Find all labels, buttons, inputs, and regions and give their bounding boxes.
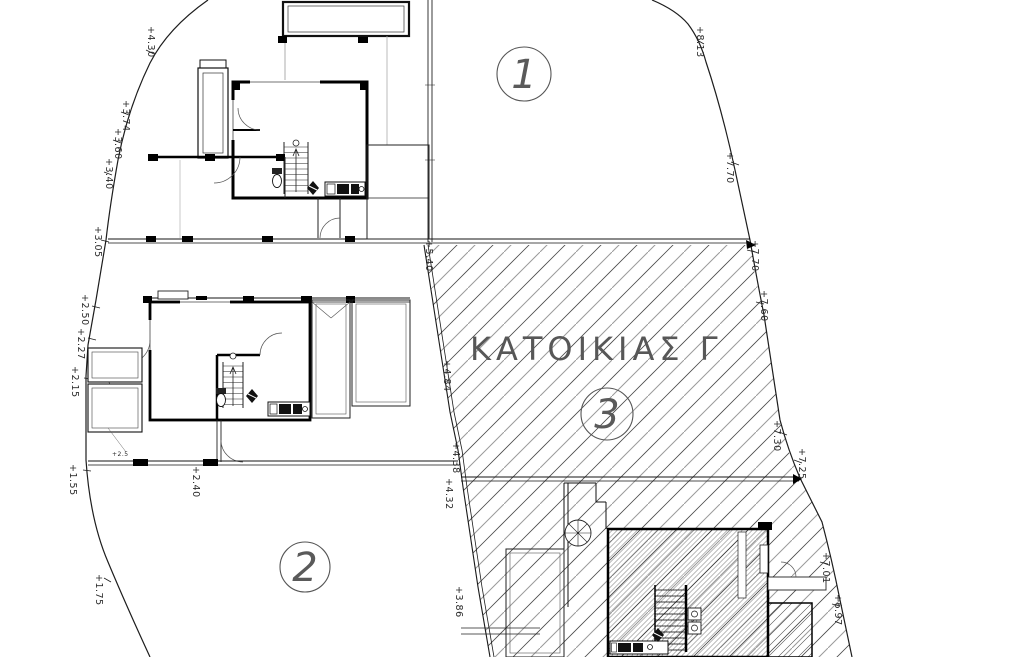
zone-1-badge: 1 (497, 47, 551, 101)
elevation-label: +2.15 (69, 366, 80, 398)
elevation-label: +7.60 (758, 290, 769, 322)
zone-2-number: 2 (292, 545, 317, 591)
elevation-label: +7.30 (771, 420, 782, 452)
elevation-label: +2.27 (75, 328, 86, 360)
site-plan-canvas: 1 2 3 ΚΑΤΟΙΚΙΑΣ Γ +4.30+3.74+3.60+3.40+3… (0, 0, 1021, 657)
elevation-label: +2.5 (112, 451, 129, 458)
elevation-label: +4.38 (450, 442, 461, 474)
elevation-label: +3.60 (112, 128, 123, 160)
area-title: ΚΑΤΟΙΚΙΑΣ Γ (470, 330, 723, 368)
site-plan-drawing: 1 2 3 ΚΑΤΟΙΚΙΑΣ Γ +4.30+3.74+3.60+3.40+3… (0, 0, 1021, 657)
house-3-spiral-stair (565, 520, 591, 546)
elevation-label: +7.70 (749, 240, 760, 272)
elevation-label: +3.05 (92, 226, 103, 258)
elevation-label: +2.40 (190, 466, 201, 498)
elevation-label: +7.25 (796, 448, 807, 480)
house-1-kitchen (325, 182, 365, 196)
elevation-label: +6.97 (832, 594, 843, 626)
elevation-label: +7.70 (724, 152, 735, 184)
elevation-label: +4.84 (441, 360, 452, 392)
elevation-label: +1.55 (67, 464, 78, 496)
elevation-label: +3.86 (453, 586, 464, 618)
house-2-wc (216, 388, 226, 407)
house-1-plan (148, 2, 429, 239)
elevation-label: +4.30 (145, 26, 156, 58)
elevation-label: +8.13 (694, 26, 705, 58)
house-3-kitchen (610, 641, 668, 654)
elevation-label: +3.40 (103, 158, 114, 190)
zone-2-badge: 2 (280, 542, 330, 592)
elevation-label: +1.75 (93, 574, 104, 606)
elevation-label: +5.40 (423, 240, 434, 272)
zone-1-number: 1 (511, 52, 536, 98)
house-1-wc (272, 168, 282, 188)
house-2-plan (88, 291, 458, 466)
house-2-kitchen (268, 402, 310, 416)
elevation-label: +7.01 (820, 552, 831, 584)
elevation-label: +2.50 (79, 294, 90, 326)
elevation-label: +3.74 (120, 100, 131, 132)
zone-3-number: 3 (594, 392, 619, 438)
plot-fence-line (425, 0, 435, 242)
elevation-label: +4.32 (443, 478, 454, 510)
